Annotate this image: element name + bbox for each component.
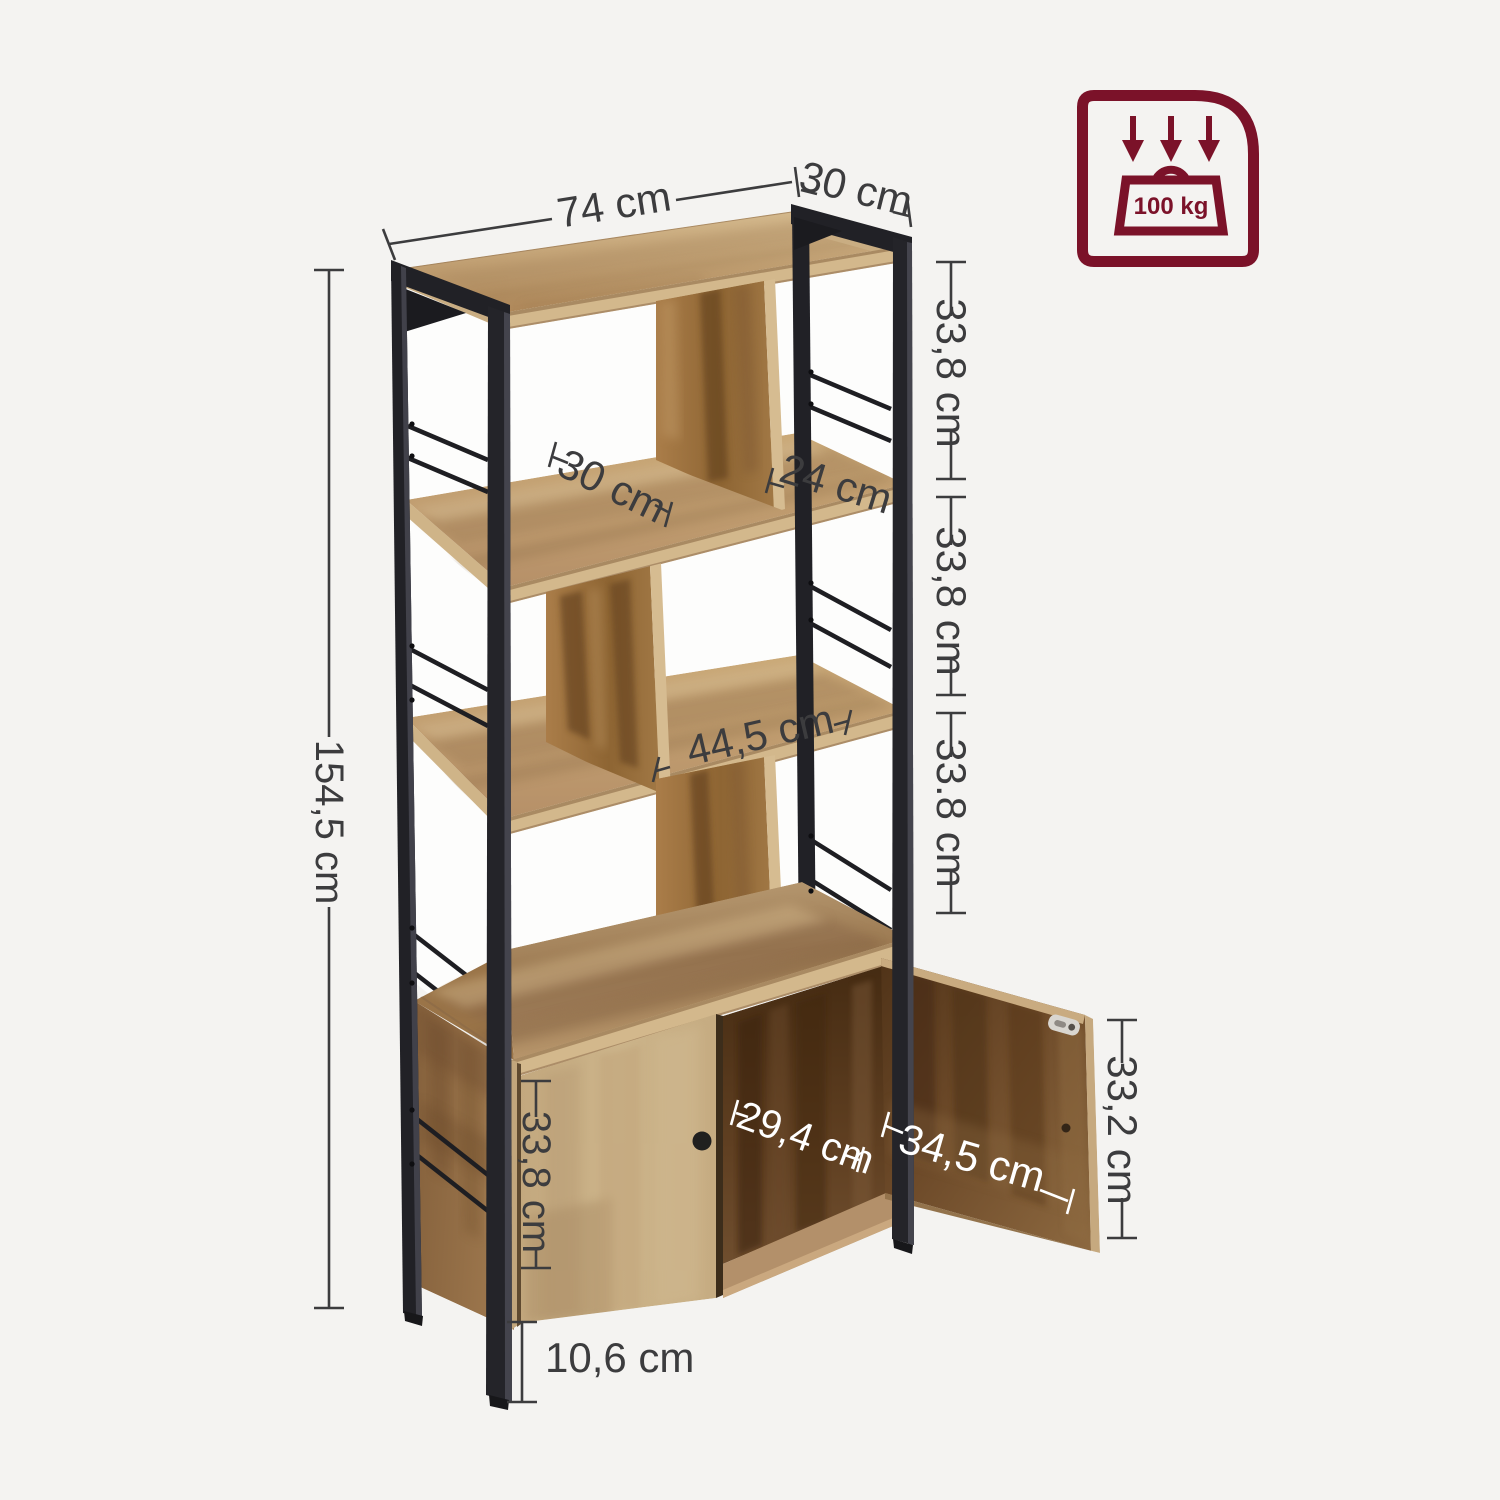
svg-text:33,8 cm: 33,8 cm (928, 526, 975, 675)
svg-text:33.8 cm: 33.8 cm (928, 738, 975, 887)
svg-text:33,8 cm: 33,8 cm (514, 1111, 558, 1253)
svg-text:100 kg: 100 kg (1134, 193, 1209, 220)
svg-text:33,8 cm: 33,8 cm (928, 298, 975, 447)
svg-text:33,2 cm: 33,2 cm (1099, 1055, 1146, 1204)
svg-text:10,6 cm: 10,6 cm (545, 1334, 694, 1381)
svg-text:154,5 cm: 154,5 cm (307, 740, 351, 905)
